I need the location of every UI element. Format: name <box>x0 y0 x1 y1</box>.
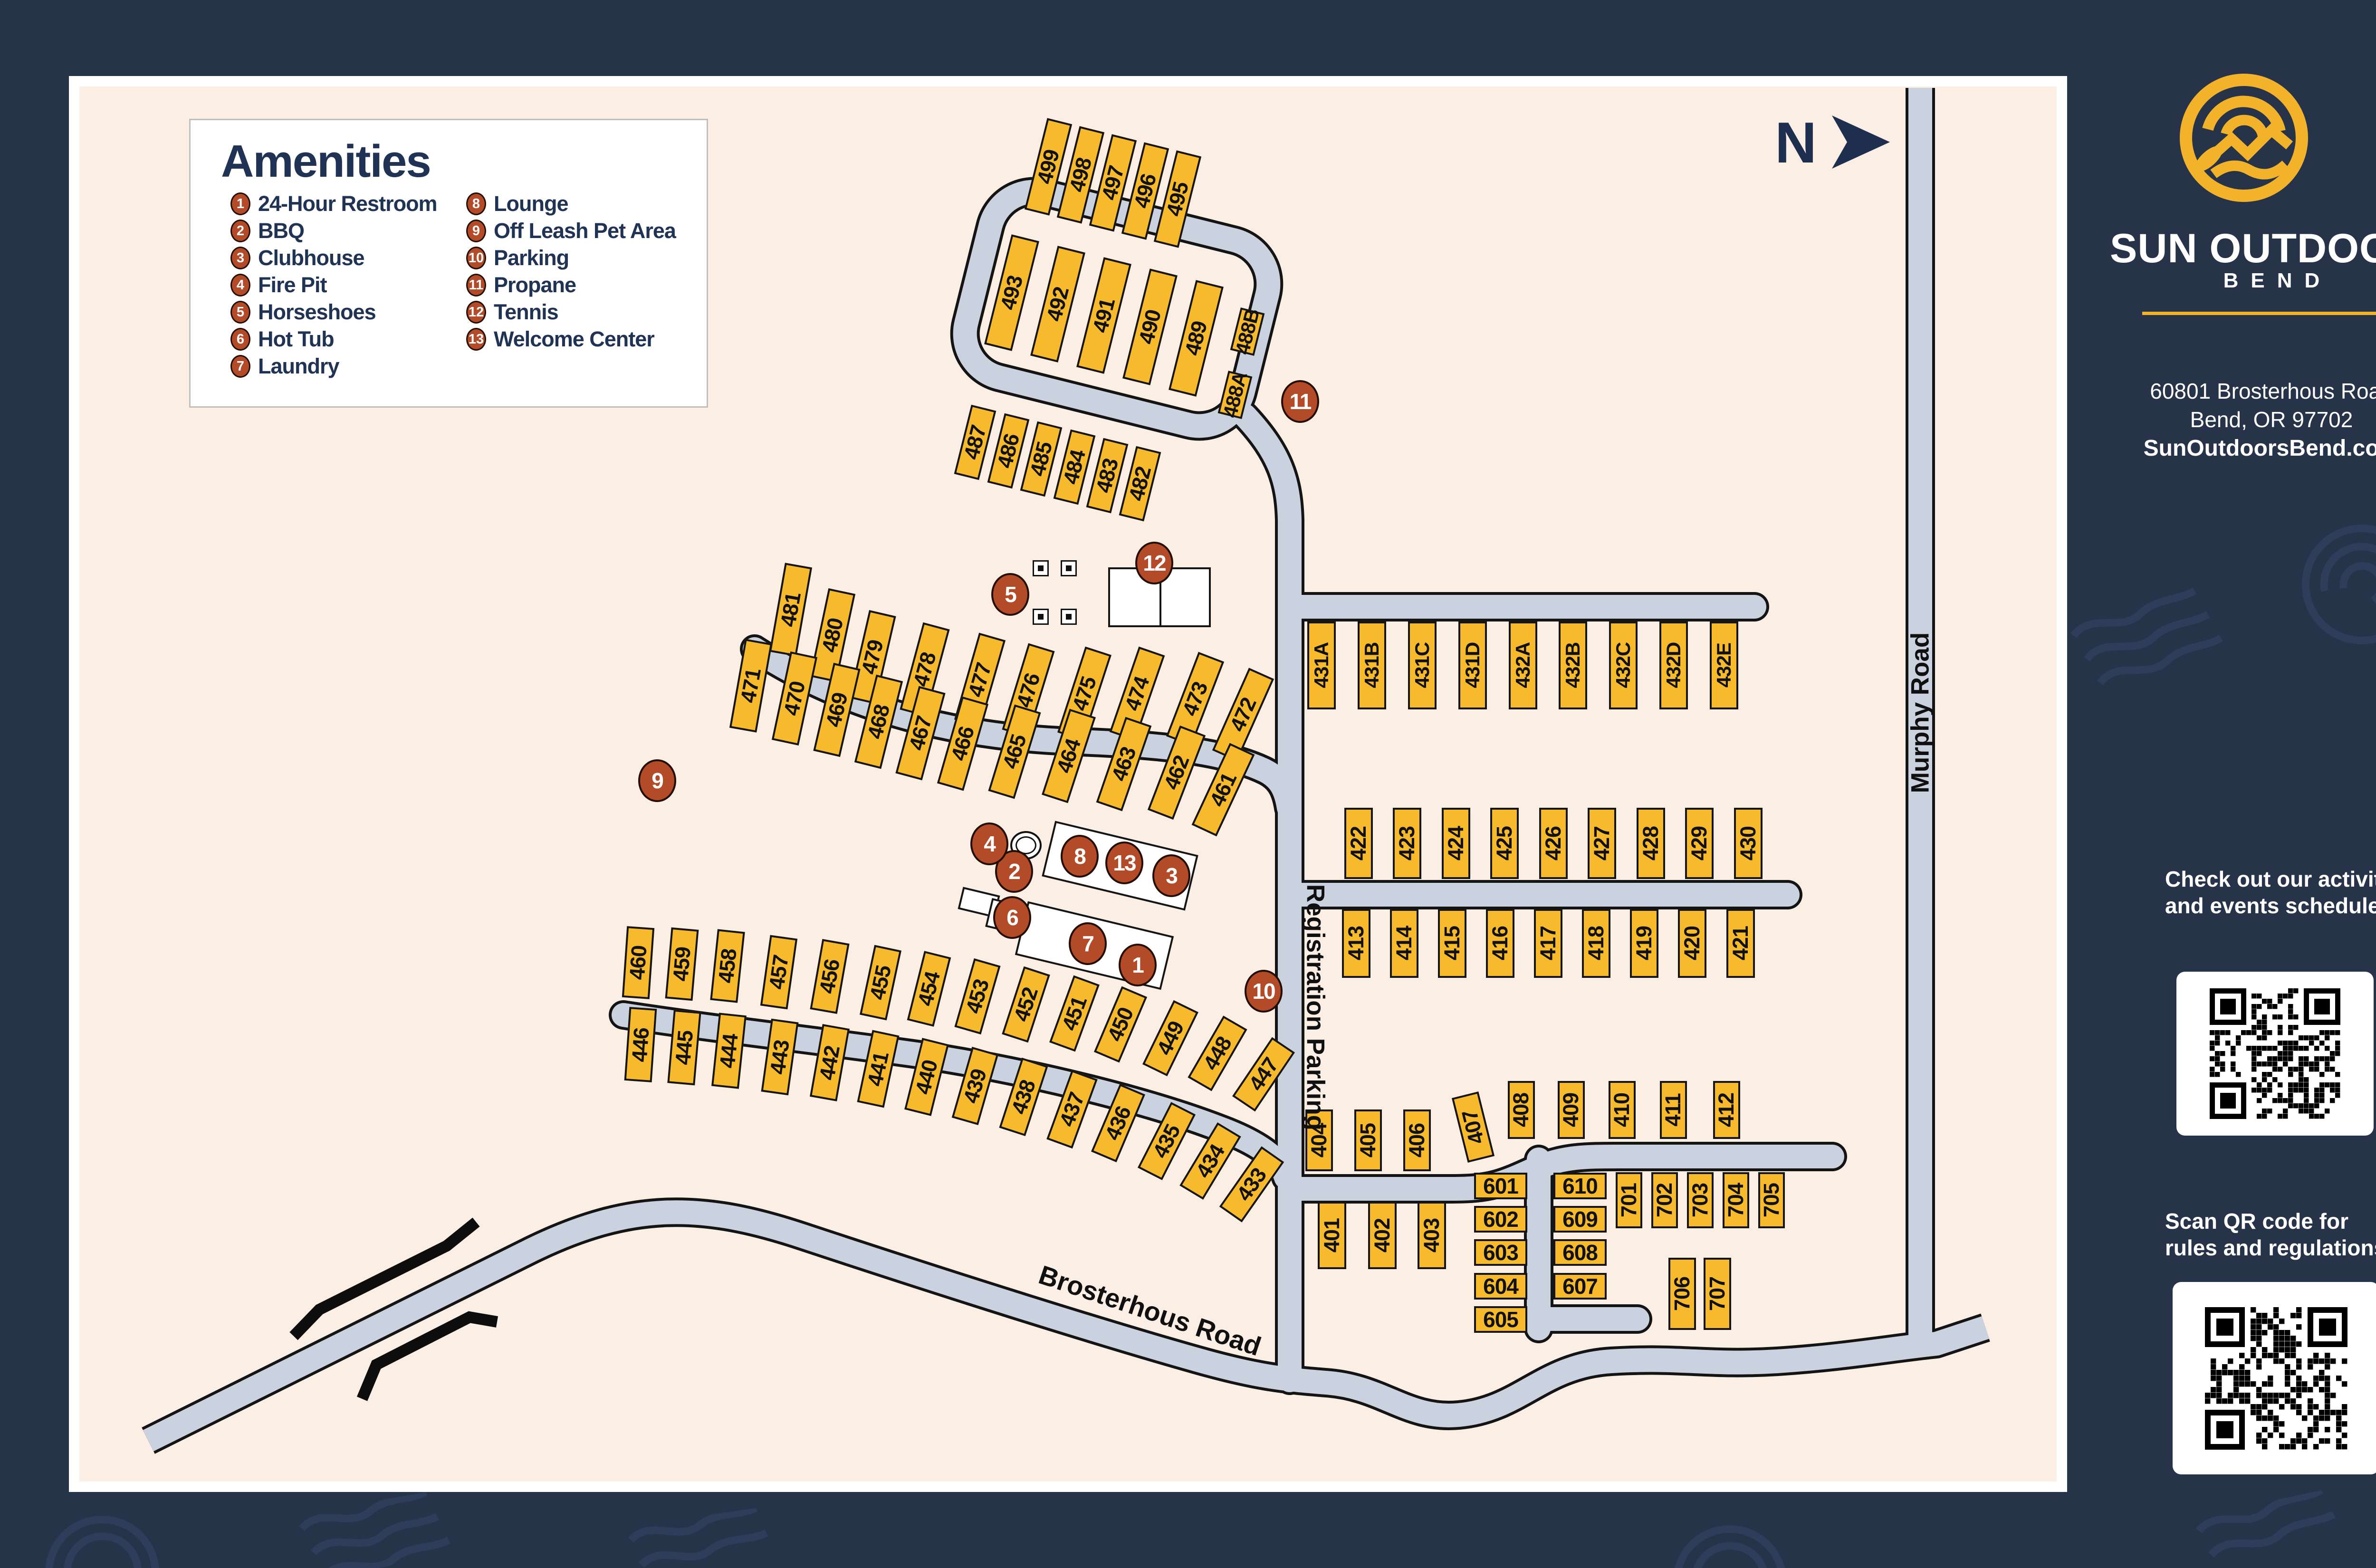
amenity-marker-13: 13 <box>1105 841 1143 884</box>
amenity-marker-7: 7 <box>1069 922 1107 965</box>
amenity-marker-12: 12 <box>1135 542 1173 584</box>
legend-badge: 4 <box>230 274 250 296</box>
legend-item-off-leash-pet-area: 9Off Leash Pet Area <box>466 219 676 243</box>
legend-item-parking: 10Parking <box>466 246 569 270</box>
legend-badge: 6 <box>230 328 250 351</box>
legend-badge: 10 <box>466 247 486 269</box>
amenity-marker-1: 1 <box>1119 944 1157 986</box>
amenity-marker-8: 8 <box>1061 835 1099 878</box>
qr1-heading: Check out our activities and events sche… <box>2165 866 2376 919</box>
legend-item-horseshoes: 5Horseshoes <box>230 300 376 325</box>
amenity-marker-5: 5 <box>991 573 1029 616</box>
north-label: N <box>1775 109 1817 176</box>
legend-item-lounge: 8Lounge <box>466 191 568 216</box>
legend-item-welcome-center: 13Welcome Center <box>466 327 654 352</box>
rules-qr-code <box>2173 1282 2376 1474</box>
address-line1: 60801 Brosterhous Road <box>2110 378 2376 404</box>
legend-badge: 12 <box>466 301 486 324</box>
legend-item-24-hour-restroom: 124-Hour Restroom <box>230 191 437 216</box>
legend-badge: 3 <box>230 247 250 269</box>
amenity-marker-10: 10 <box>1245 970 1283 1013</box>
legend-item-hot-tub: 6Hot Tub <box>230 327 334 352</box>
legend-badge: 1 <box>230 192 250 215</box>
legend-badge: 7 <box>230 355 250 378</box>
legend-badge: 11 <box>466 274 486 296</box>
qr-image <box>2205 1307 2347 1450</box>
brand-name: SUN OUTDOORS™ <box>2110 222 2376 272</box>
legend-badge: 13 <box>466 328 486 351</box>
legend-badge: 2 <box>230 220 250 242</box>
amenity-marker-6: 6 <box>993 896 1031 939</box>
legend-item-fire-pit: 4Fire Pit <box>230 273 327 297</box>
qr2-heading: Scan QR code for rules and regulations <box>2165 1208 2376 1261</box>
amenity-marker-3: 3 <box>1152 854 1190 897</box>
website-url: SunOutdoorsBend.com <box>2110 435 2376 461</box>
legend-item-bbq: 2BBQ <box>230 219 304 243</box>
legend-title: Amenities <box>221 135 431 188</box>
brand-location: BEND <box>2110 269 2376 293</box>
north-indicator: N <box>1775 109 1895 176</box>
legend-item-laundry: 7Laundry <box>230 354 339 379</box>
legend-badge: 5 <box>230 301 250 324</box>
amenity-marker-11: 11 <box>1281 380 1319 423</box>
activities-qr-code <box>2176 972 2374 1136</box>
amenity-marker-4: 4 <box>970 822 1008 865</box>
legend-item-clubhouse: 3Clubhouse <box>230 246 364 270</box>
legend-badge: 9 <box>466 220 486 242</box>
amenities-legend: Amenities 124-Hour Restroom2BBQ3Clubhous… <box>189 119 708 408</box>
legend-item-tennis: 12Tennis <box>466 300 558 325</box>
poster-canvas: 499498497496495493492491490489488B488A48… <box>0 0 2376 1568</box>
north-arrow-icon <box>1823 112 1895 173</box>
qr-image <box>2210 988 2340 1119</box>
amenity-marker-9: 9 <box>638 759 676 802</box>
sidebar-divider <box>2142 312 2376 315</box>
brand-text: SUN OUTDOORS <box>2110 226 2376 271</box>
address-line2: Bend, OR 97702 <box>2110 407 2376 432</box>
legend-item-propane: 11Propane <box>466 273 576 297</box>
legend-badge: 8 <box>466 192 486 215</box>
